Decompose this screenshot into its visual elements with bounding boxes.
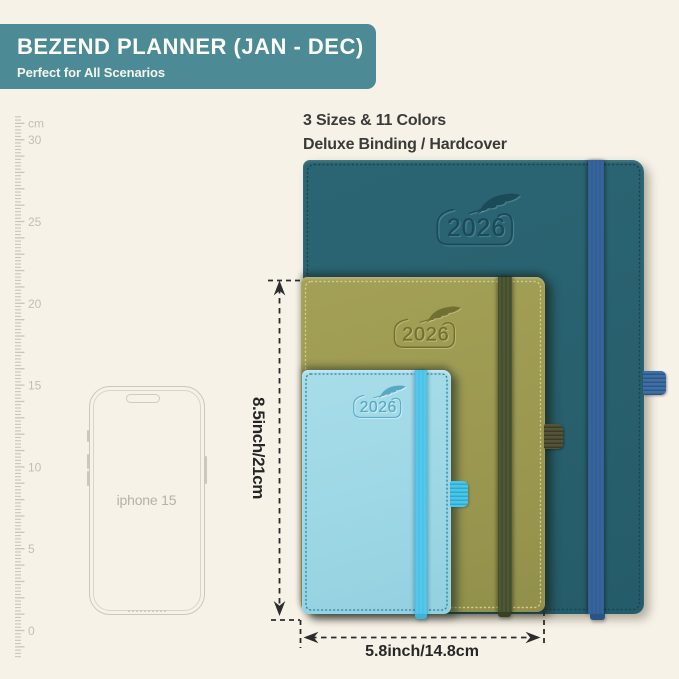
svg-text:5: 5 (28, 542, 35, 556)
svg-text:cm: cm (28, 117, 44, 131)
svg-text:30: 30 (28, 133, 42, 147)
svg-text:15: 15 (28, 379, 42, 393)
svg-text:25: 25 (28, 215, 42, 229)
svg-text:20: 20 (28, 297, 42, 311)
svg-text:10: 10 (28, 460, 42, 474)
svg-text:0: 0 (28, 624, 35, 638)
